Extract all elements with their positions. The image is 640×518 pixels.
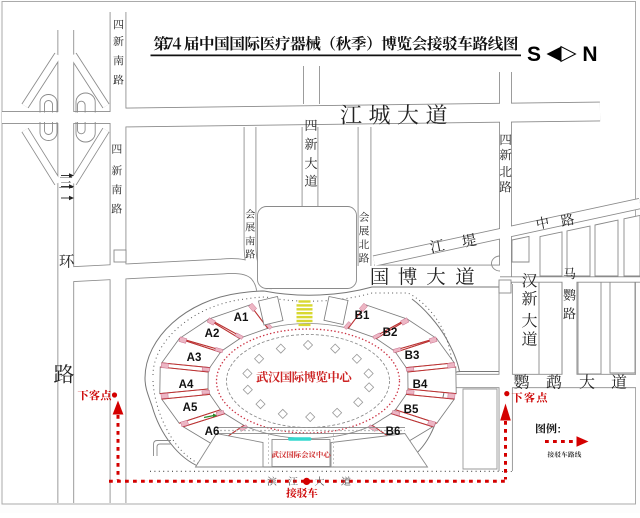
svg-text:N: N (582, 43, 597, 66)
svg-text:A3: A3 (187, 352, 202, 364)
svg-text::: : (558, 425, 561, 436)
svg-text:B2: B2 (383, 327, 398, 339)
svg-text:A2: A2 (205, 328, 220, 340)
svg-text:B6: B6 (386, 426, 401, 438)
svg-text:B5: B5 (404, 404, 419, 416)
svg-text:S: S (527, 43, 541, 66)
svg-text:A4: A4 (179, 379, 194, 391)
svg-text:A1: A1 (234, 312, 249, 324)
svg-text:A5: A5 (183, 402, 198, 414)
svg-text:B3: B3 (405, 350, 420, 362)
svg-text:A6: A6 (205, 426, 220, 438)
svg-text:B1: B1 (355, 310, 370, 322)
svg-text:B4: B4 (413, 379, 428, 391)
